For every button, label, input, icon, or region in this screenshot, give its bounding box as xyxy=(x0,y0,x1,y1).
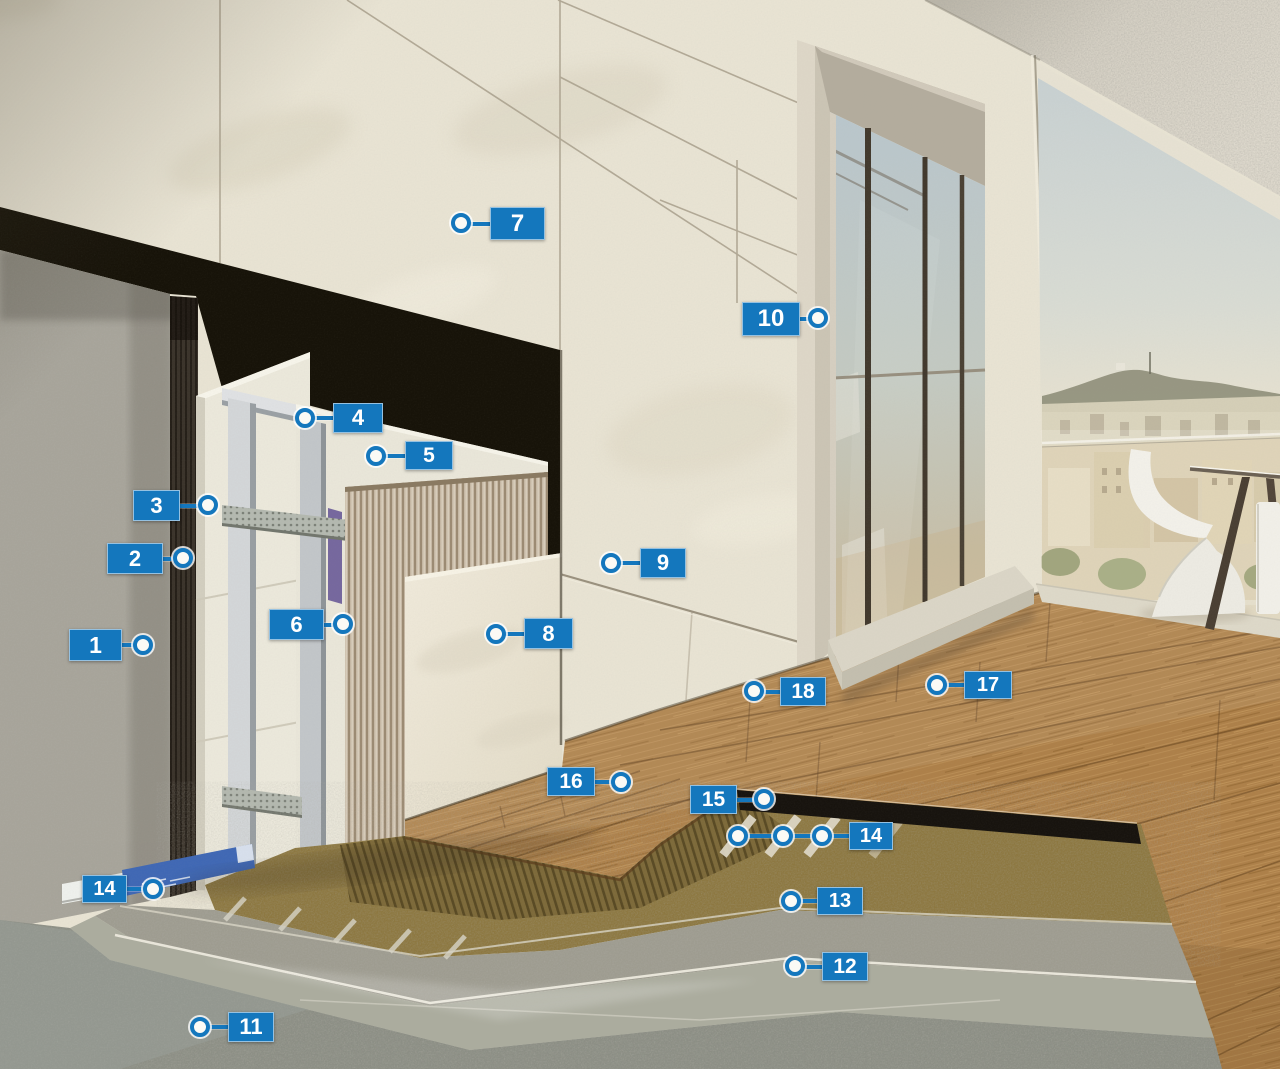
leader-dot xyxy=(190,1017,210,1037)
leader-dot xyxy=(143,879,163,899)
callout-15[interactable]: 15 xyxy=(690,785,737,814)
leader-dot xyxy=(133,635,153,655)
callout-6[interactable]: 6 xyxy=(269,609,324,640)
leader-dot xyxy=(728,826,748,846)
callout-3[interactable]: 3 xyxy=(133,490,180,521)
callout-4[interactable]: 4 xyxy=(333,403,383,433)
leader-dot xyxy=(785,956,805,976)
callout-layer: 12345678910111213141415161718 xyxy=(0,0,1280,1069)
diagram-stage: 12345678910111213141415161718 xyxy=(0,0,1280,1069)
leader-dot xyxy=(173,548,193,568)
leader-dot xyxy=(198,495,218,515)
leader-dot xyxy=(295,408,315,428)
leader-dot xyxy=(611,772,631,792)
leader-dot xyxy=(366,446,386,466)
leader-dot xyxy=(781,891,801,911)
leader-dot xyxy=(812,826,832,846)
leader-line xyxy=(738,834,849,838)
leader-dot xyxy=(451,213,471,233)
leader-dot xyxy=(927,675,947,695)
callout-7[interactable]: 7 xyxy=(490,207,545,240)
leader-dot xyxy=(601,553,621,573)
callout-17[interactable]: 17 xyxy=(964,671,1012,699)
leader-dot xyxy=(773,826,793,846)
callout-13[interactable]: 13 xyxy=(817,887,863,915)
leader-dot xyxy=(744,681,764,701)
callout-12[interactable]: 12 xyxy=(822,952,868,981)
callout-11[interactable]: 11 xyxy=(228,1012,274,1042)
leader-dot xyxy=(808,308,828,328)
leader-dot xyxy=(754,789,774,809)
callout-5[interactable]: 5 xyxy=(405,441,453,470)
callout-18[interactable]: 18 xyxy=(780,677,826,706)
callout-2[interactable]: 2 xyxy=(107,543,163,574)
callout-8[interactable]: 8 xyxy=(524,618,573,649)
callout-1[interactable]: 1 xyxy=(69,629,122,661)
leader-dot xyxy=(333,614,353,634)
leader-dot xyxy=(486,624,506,644)
callout-10[interactable]: 10 xyxy=(742,302,800,336)
callout-16[interactable]: 16 xyxy=(547,767,595,796)
callout-14-left[interactable]: 14 xyxy=(82,875,127,903)
callout-9[interactable]: 9 xyxy=(640,548,686,578)
callout-14-right[interactable]: 14 xyxy=(849,822,893,850)
